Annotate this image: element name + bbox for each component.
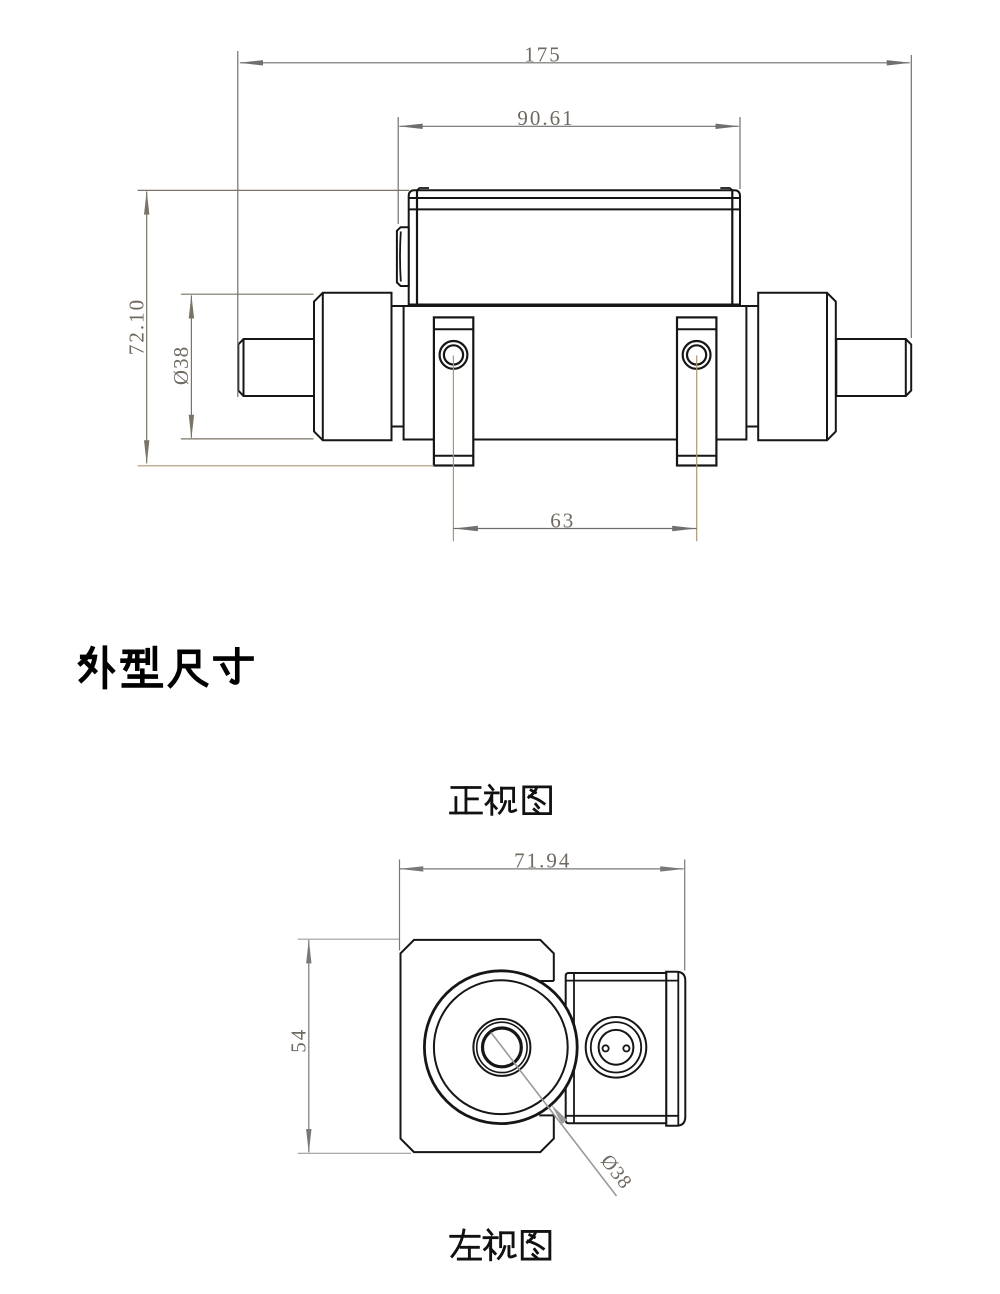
svg-text:90.61: 90.61 bbox=[517, 106, 574, 130]
svg-text:72.10: 72.10 bbox=[125, 298, 149, 355]
svg-text:71.94: 71.94 bbox=[514, 848, 571, 872]
svg-text:175: 175 bbox=[524, 42, 562, 66]
svg-text:54: 54 bbox=[287, 1028, 311, 1053]
svg-text:Ø38: Ø38 bbox=[596, 1151, 636, 1194]
svg-text:63: 63 bbox=[550, 508, 575, 532]
svg-text:Ø38: Ø38 bbox=[169, 346, 193, 385]
